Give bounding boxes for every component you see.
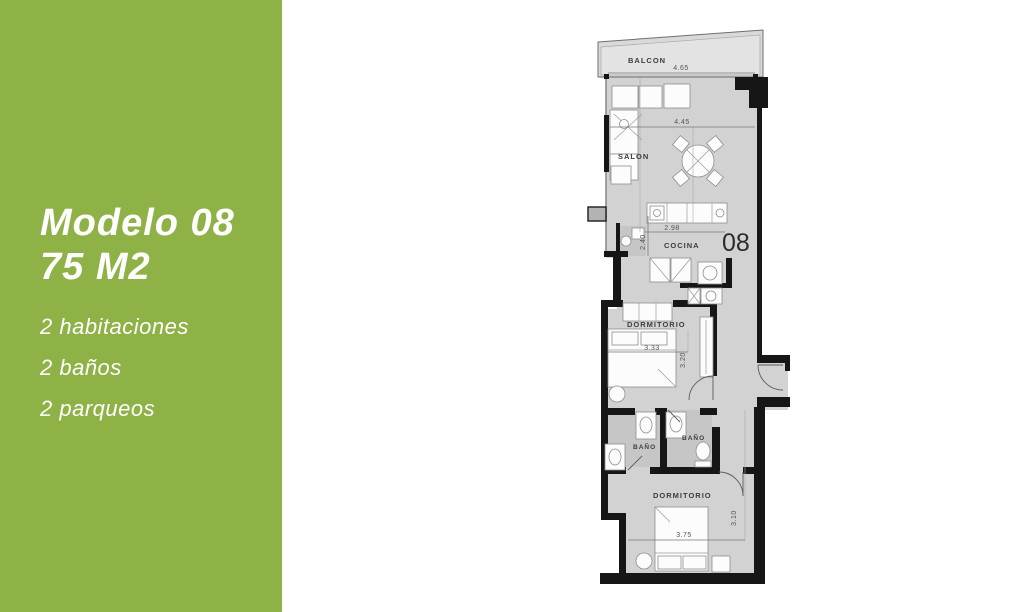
room-label-dormitorio1: DORMITORIO	[627, 320, 686, 329]
wall-segment	[619, 513, 626, 579]
floor-plan: 4.65 4.45 2.98 2.40 3.33 3.20 3.75 3.10 …	[560, 20, 810, 595]
accent-sidebar	[0, 0, 282, 612]
room-label-bano1: BAÑO	[633, 442, 656, 451]
wall-marker	[604, 74, 609, 79]
dim-salon: 4.45	[674, 119, 690, 126]
wall-segment	[749, 90, 768, 108]
wall-segment	[650, 467, 720, 474]
model-name: Modelo 08	[40, 202, 235, 244]
wall-segment	[655, 408, 667, 415]
room-label-dormitorio2: DORMITORIO	[653, 491, 712, 500]
wall-segment	[616, 223, 620, 259]
facade-service-box	[588, 207, 606, 221]
toilet-icon	[696, 442, 710, 460]
feature-bedrooms: 2 habitaciones	[40, 314, 189, 340]
wall-marker	[753, 74, 758, 79]
wall-segment	[601, 300, 623, 307]
stove-icon	[716, 209, 724, 217]
dim-dorm2-d: 3.10	[731, 510, 738, 526]
wall-segment	[613, 257, 621, 307]
wardrobe	[700, 317, 713, 377]
wall-segment	[712, 427, 720, 474]
wall-segment	[604, 115, 609, 172]
feature-parking: 2 parqueos	[40, 396, 189, 422]
room-label-bano2: BAÑO	[682, 433, 705, 442]
model-size: 75 M2	[40, 246, 151, 288]
side-table	[712, 556, 730, 572]
wall-segment	[700, 408, 717, 415]
room-label-cocina: COCINA	[664, 241, 700, 250]
dim-dorm2-w: 3.75	[676, 532, 692, 539]
wall-segment	[726, 258, 732, 288]
room-label-balcon: BALCON	[628, 56, 666, 65]
dim-cocina-w: 2.98	[664, 225, 680, 232]
wall-segment	[754, 407, 765, 583]
wall-segment	[757, 107, 762, 357]
room-label-salon: SALON	[618, 152, 649, 161]
page-title: Modelo 08 75 M2	[40, 201, 235, 290]
unit-number: 08	[722, 229, 750, 257]
model-title-block: Modelo 08 75 M2	[40, 201, 235, 290]
wall-segment	[757, 397, 790, 407]
wall-segment	[757, 355, 790, 363]
feature-bathrooms: 2 baños	[40, 355, 189, 381]
dim-dorm1-d: 3.20	[680, 352, 687, 368]
dim-dorm1-w: 3.33	[644, 345, 660, 352]
dim-cocina-d: 2.40	[640, 234, 647, 250]
wall-segment	[601, 408, 635, 415]
wall-segment	[785, 363, 790, 371]
wall-segment	[743, 467, 764, 474]
feature-list: 2 habitaciones 2 baños 2 parqueos	[40, 314, 189, 437]
closet	[623, 303, 672, 321]
wall-segment	[735, 77, 768, 90]
stool	[636, 553, 652, 569]
dim-balcon: 4.65	[673, 65, 689, 72]
side-table	[609, 386, 625, 402]
